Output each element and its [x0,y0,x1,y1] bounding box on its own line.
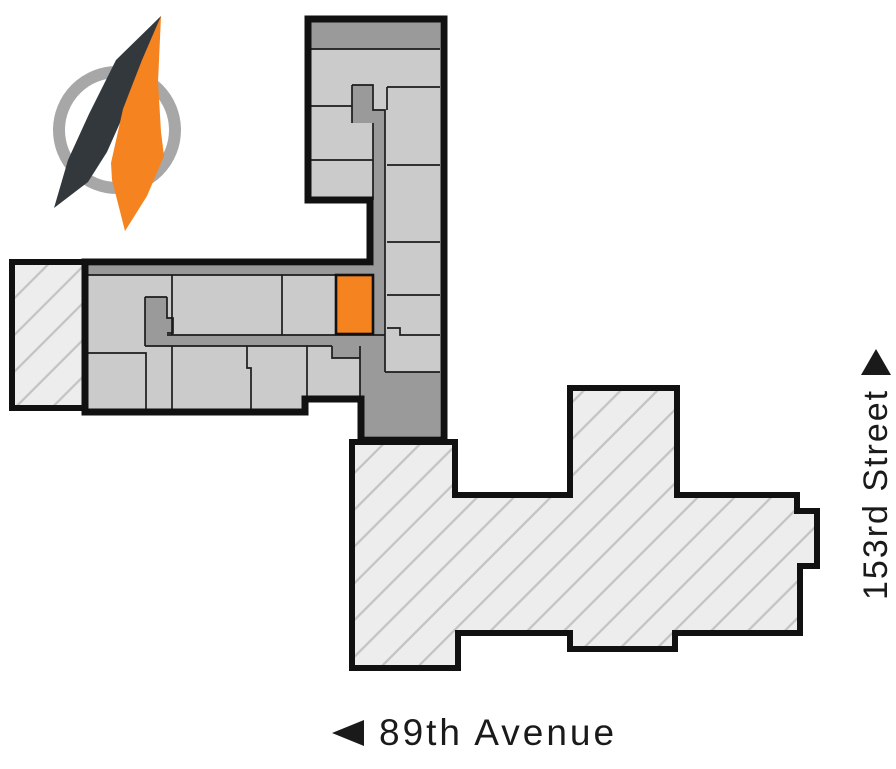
street-label-89th: 89th Avenue [332,712,617,754]
site-plan-page: 153rd Street 89th Avenue [0,0,896,769]
highlighted-unit[interactable] [336,275,373,334]
west-annex-building [12,262,85,408]
compass-icon [54,16,175,231]
street-name-153rd: 153rd Street [857,389,896,600]
street-name-89th: 89th Avenue [379,712,617,754]
triangle-left-icon [332,720,364,746]
triangle-up-icon [861,349,891,375]
street-label-153rd: 153rd Street [854,308,896,600]
site-plan-drawing [0,0,896,769]
